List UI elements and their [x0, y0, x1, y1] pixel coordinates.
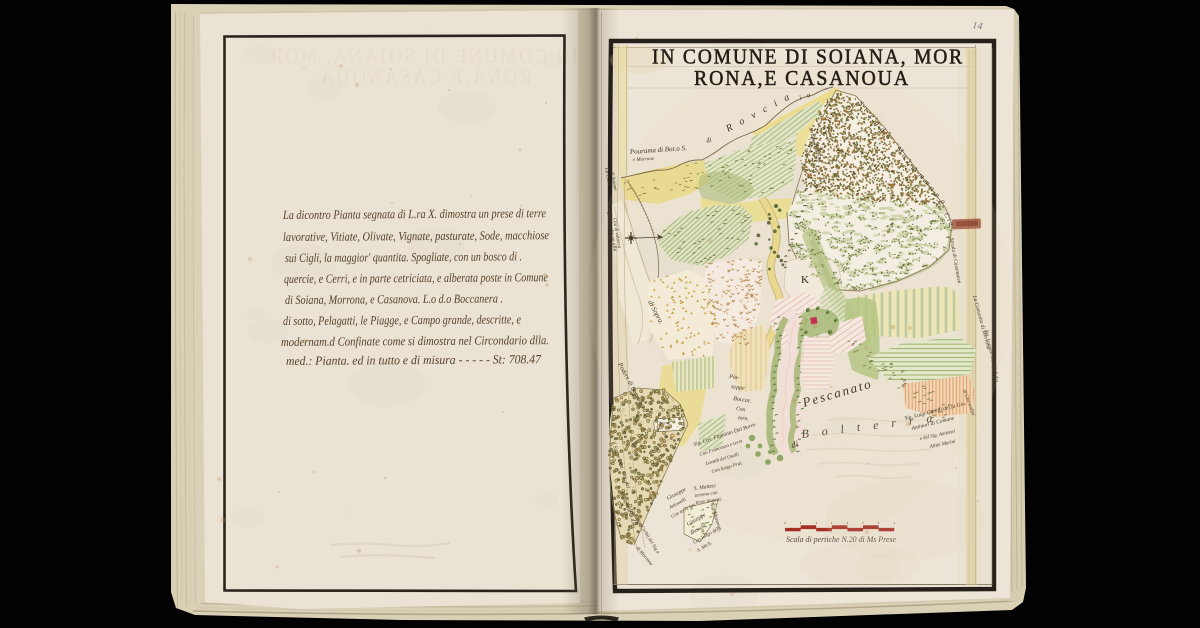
svg-text:RONA,E CASANOUA: RONA,E CASANOUA: [318, 65, 532, 89]
svg-text:modernam.d Confinate come si d: modernam.d Confinate come si dimostra ne…: [281, 333, 549, 349]
svg-text:lavorative, Vitiate, Olivate,: lavorative, Vitiate, Olivate, Vignate, p…: [283, 228, 549, 244]
svg-text:sui Cigli, la maggior' quantit: sui Cigli, la maggior' quantita. Spoglia…: [285, 249, 522, 265]
svg-text:di Soiana, Morrona, e Casanova: di Soiana, Morrona, e Casanova. L.o d.o …: [285, 291, 503, 307]
svg-text:quercie, e Cerri, e in parte c: quercie, e Cerri, e in parte cetriciata,…: [284, 270, 548, 286]
svg-text:14: 14: [972, 20, 983, 32]
svg-text:RONA,E CASANOUA: RONA,E CASANOUA: [694, 66, 910, 90]
svg-text:med.: Pianta. ed in tutto e di: med.: Pianta. ed in tutto e di misura - …: [286, 352, 542, 368]
svg-text:K: K: [801, 274, 809, 286]
svg-text:La dicontro Pianta segnata di: La dicontro Pianta segnata di L.ra X. di…: [282, 206, 546, 222]
svg-text:di sotto, Pelagatti, le Piagge: di sotto, Pelagatti, le Piagge, e Campo …: [283, 312, 521, 328]
svg-text:IN COMUNE DI SOIANA, MOR: IN COMUNE DI SOIANA, MOR: [652, 45, 964, 69]
